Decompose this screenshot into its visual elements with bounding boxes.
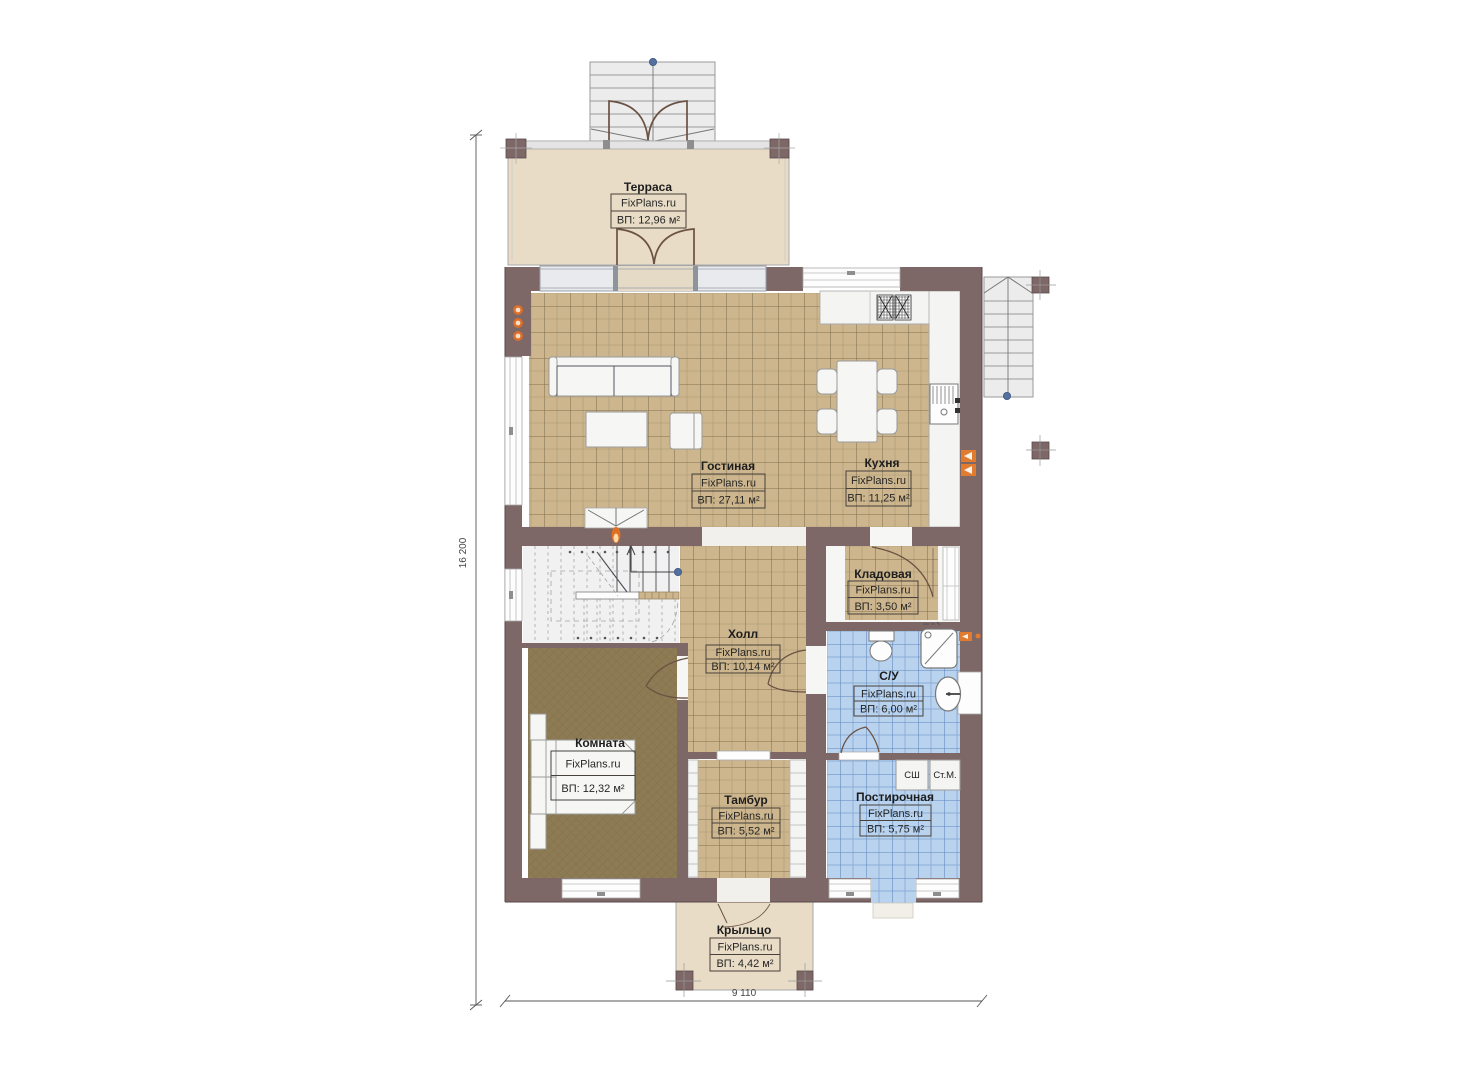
svg-text:FixPlans.ru: FixPlans.ru [565,758,620,770]
svg-text:FixPlans.ru: FixPlans.ru [718,811,773,823]
svg-text:ВП: 3,50 м²: ВП: 3,50 м² [854,601,911,613]
svg-text:Крыльцо: Крыльцо [717,923,772,937]
svg-text:ВП: 11,25 м²: ВП: 11,25 м² [847,492,910,504]
svg-text:Кладовая: Кладовая [854,567,911,581]
svg-text:ВП: 4,42 м²: ВП: 4,42 м² [716,958,773,970]
svg-text:9 110: 9 110 [732,988,757,999]
svg-text:СШ: СШ [904,770,920,781]
svg-text:ВП: 12,32 м²: ВП: 12,32 м² [561,783,625,795]
svg-text:FixPlans.ru: FixPlans.ru [861,689,916,701]
svg-text:FixPlans.ru: FixPlans.ru [855,584,910,596]
svg-text:Холл: Холл [728,627,758,641]
svg-text:ВП: 5,52 м²: ВП: 5,52 м² [717,826,774,838]
svg-text:FixPlans.ru: FixPlans.ru [868,808,923,820]
svg-text:Терраса: Терраса [624,180,673,194]
svg-text:Гостиная: Гостиная [701,459,755,473]
svg-text:FixPlans.ru: FixPlans.ru [717,941,772,953]
svg-text:ВП: 10,14 м²: ВП: 10,14 м² [711,661,775,673]
svg-text:FixPlans.ru: FixPlans.ru [851,475,906,487]
svg-text:FixPlans.ru: FixPlans.ru [621,198,676,210]
svg-text:Постирочная: Постирочная [856,790,934,804]
svg-text:ВП: 5,75 м²: ВП: 5,75 м² [867,823,924,835]
svg-text:Тамбур: Тамбур [724,793,768,807]
svg-text:Комната: Комната [575,736,625,750]
svg-text:ВП: 6,00 м²: ВП: 6,00 м² [860,704,917,716]
svg-text:FixPlans.ru: FixPlans.ru [701,478,756,490]
svg-text:С/У: С/У [879,669,899,683]
svg-text:FixPlans.ru: FixPlans.ru [715,647,770,659]
svg-text:Кухня: Кухня [864,456,899,470]
svg-text:ВП: 12,96 м²: ВП: 12,96 м² [617,215,681,227]
svg-text:16 200: 16 200 [458,537,469,568]
svg-text:ВП: 27,11 м²: ВП: 27,11 м² [697,495,760,507]
svg-text:Ст.М.: Ст.М. [933,770,956,781]
